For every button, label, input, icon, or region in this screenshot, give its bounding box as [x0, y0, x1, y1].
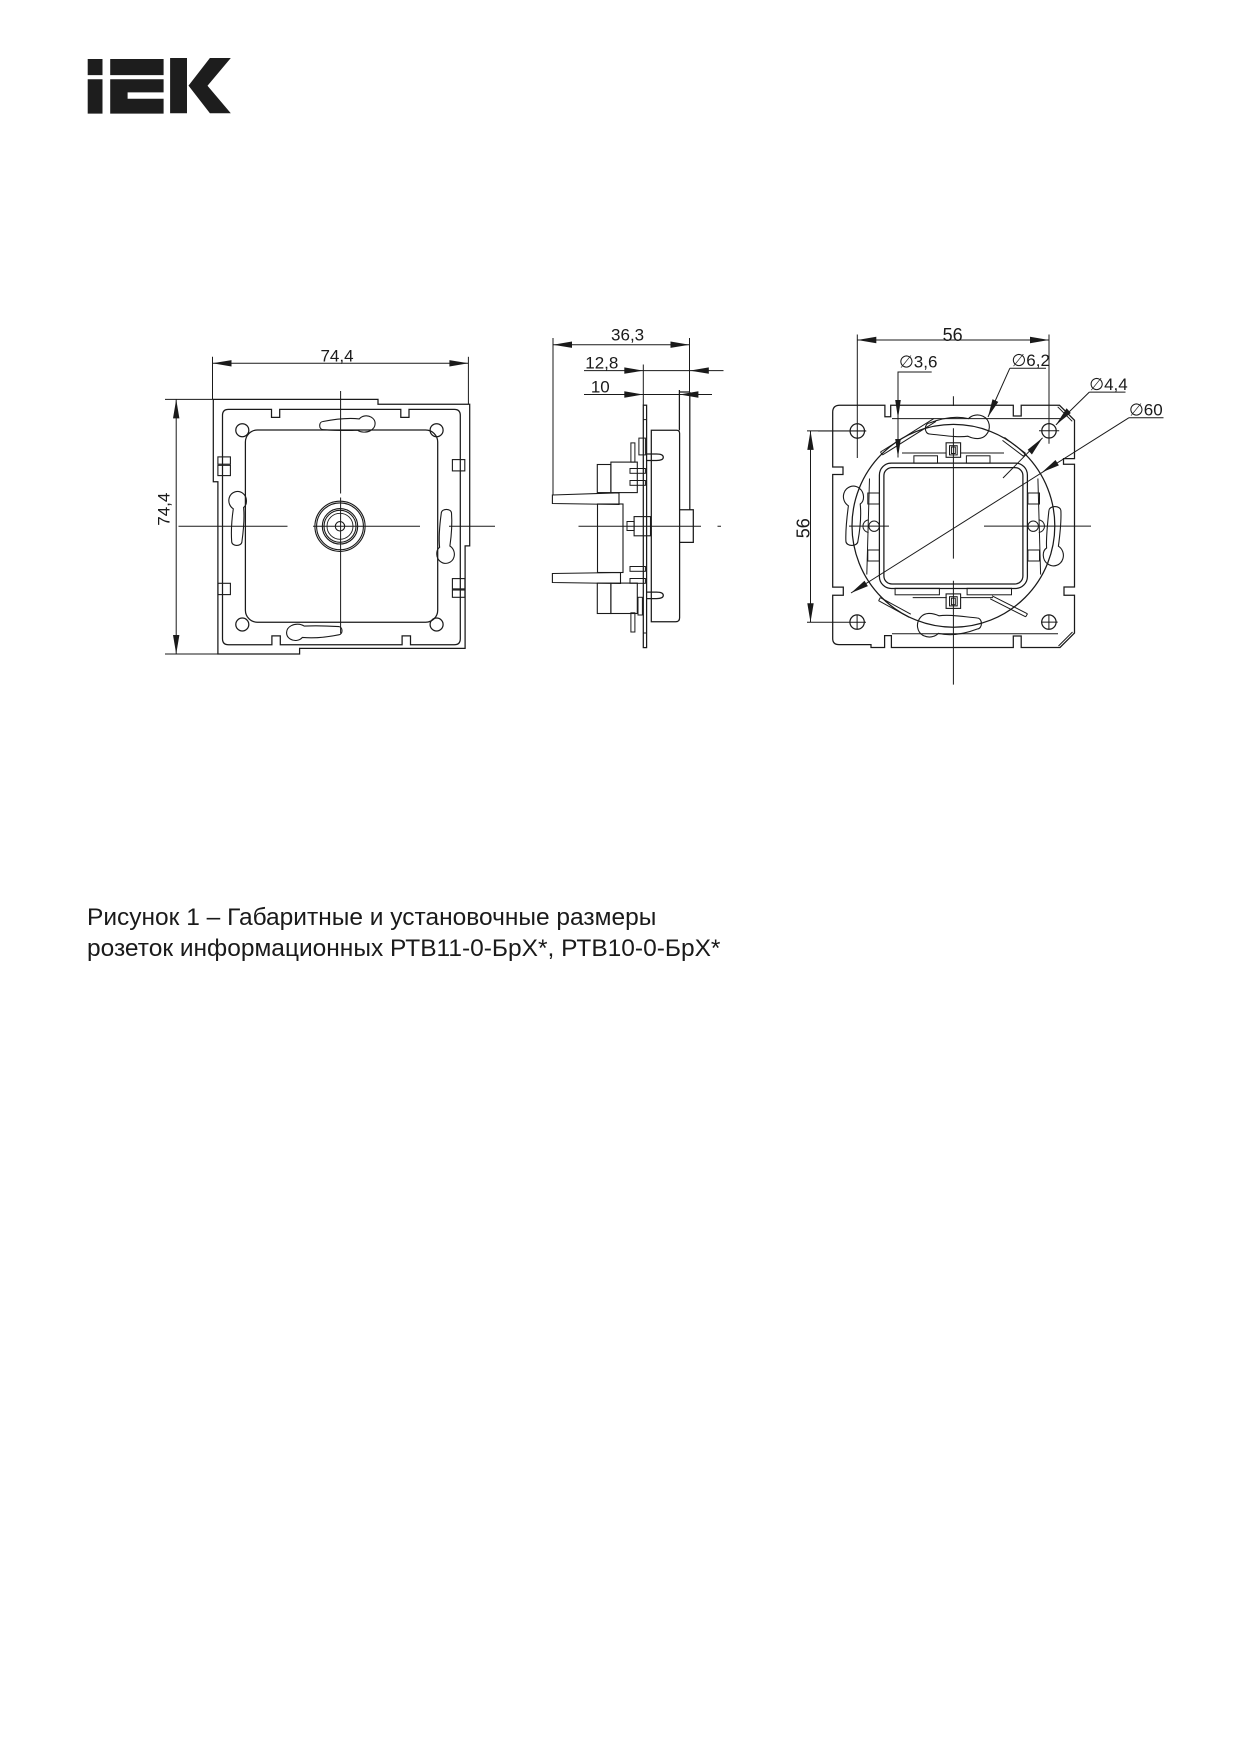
svg-text:36,3: 36,3	[611, 326, 644, 345]
svg-text:∅60: ∅60	[1129, 400, 1163, 419]
svg-text:74,4: 74,4	[155, 493, 174, 526]
svg-text:∅6,2: ∅6,2	[1012, 351, 1050, 370]
svg-text:56: 56	[943, 325, 963, 345]
svg-text:56: 56	[794, 518, 814, 538]
svg-text:розеток информационных РТВ11-0: розеток информационных РТВ11-0-БрХ*, РТВ…	[87, 935, 721, 962]
svg-text:∅4,4: ∅4,4	[1089, 375, 1127, 394]
svg-text:74,4: 74,4	[320, 347, 353, 366]
svg-text:12,8: 12,8	[585, 353, 618, 372]
svg-text:∅3,6: ∅3,6	[899, 352, 937, 371]
svg-text:Рисунок 1 – Габаритные и устан: Рисунок 1 – Габаритные и установочные ра…	[87, 904, 656, 931]
svg-text:10: 10	[591, 377, 610, 396]
